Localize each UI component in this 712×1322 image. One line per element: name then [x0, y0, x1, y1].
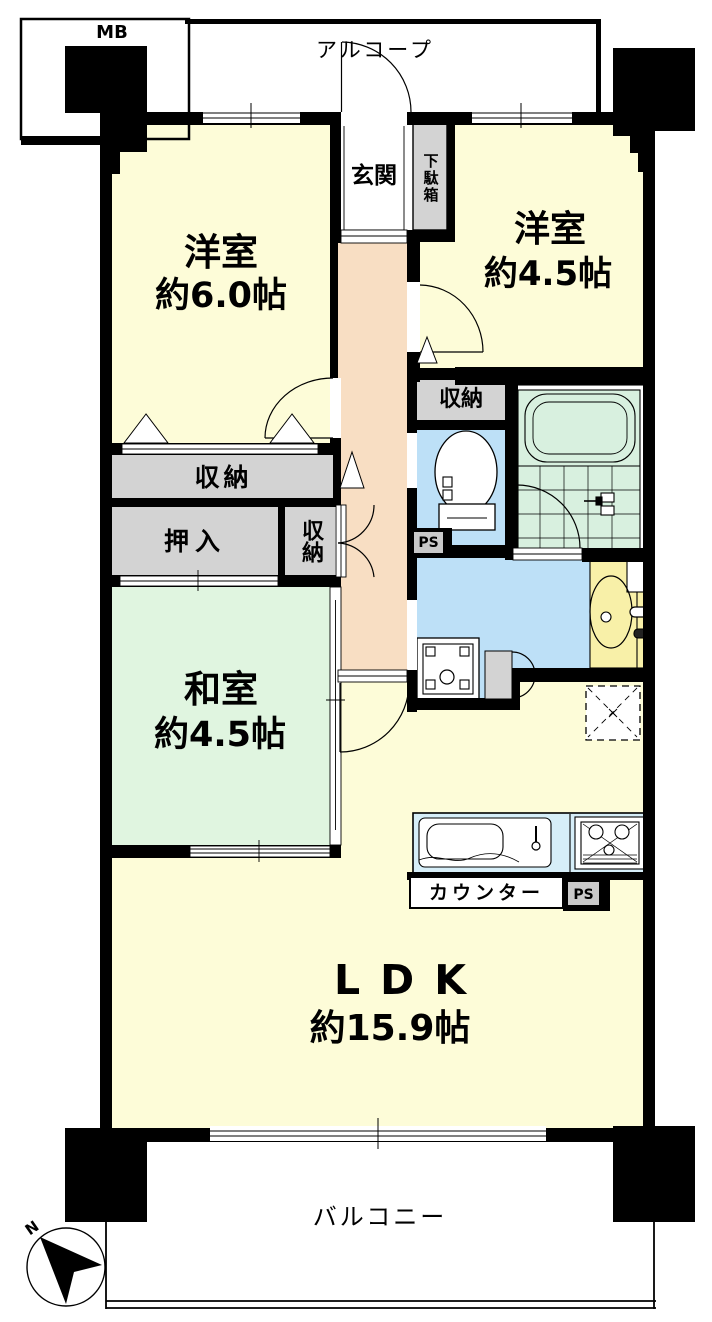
ldk-name: LDK — [250, 956, 550, 1004]
pillar-bottom-right — [613, 1126, 695, 1222]
floor-plan-drawing — [0, 0, 712, 1322]
japanese-room-size: 約4.5帖 — [105, 712, 335, 758]
ps-toilet-label: PS — [414, 532, 443, 553]
ldk-threshold — [338, 670, 407, 682]
storage-bedroom-label: 収納 — [112, 462, 335, 492]
floor-plan: MB アルコープ 玄関 下駄箱 洋室 約6.0帖 洋室 約4.5帖 収納 収納 … — [0, 0, 712, 1322]
ceiling-hatch — [586, 686, 640, 740]
doorway-toilet — [407, 433, 417, 488]
kitchen-counter — [413, 813, 650, 873]
toilet-icon — [435, 431, 497, 530]
ldk-size: 約15.9帖 — [240, 1006, 540, 1052]
western-room-2-name: 洋室 — [455, 208, 645, 252]
doorway-west-room-1 — [330, 378, 341, 438]
doorway-west-room-2 — [407, 282, 420, 352]
ps-kitchen-label: PS — [568, 883, 599, 906]
closet-label: 押入 — [112, 526, 278, 556]
balcony-label: バルコニー — [280, 1200, 480, 1234]
compass-icon — [27, 1228, 105, 1306]
alcove-label: アルコープ — [300, 36, 450, 64]
closet-front-track — [122, 444, 318, 454]
counter-label: カウンター — [410, 878, 563, 908]
entrance-step — [341, 230, 407, 243]
storage-small-label: 収納 — [288, 509, 332, 573]
japanese-room-name: 和室 — [112, 666, 330, 712]
entrance-label: 玄関 — [341, 160, 407, 192]
bath-threshold — [513, 548, 582, 560]
doorway-entrance — [341, 109, 407, 126]
pillar-meter-box — [65, 46, 147, 113]
meter-box-label: MB — [62, 22, 162, 44]
storage-small-door-track — [336, 505, 346, 577]
western-room-1-size: 約6.0帖 — [112, 274, 330, 318]
kitchen-sink-icon — [419, 818, 551, 867]
stove-icon — [575, 817, 645, 869]
storage-hall-label: 収納 — [417, 385, 505, 415]
doorway-washroom — [407, 600, 417, 670]
pillar-bottom-left — [65, 1128, 147, 1222]
shoe-cabinet-label: 下駄箱 — [414, 132, 446, 224]
western-room-1-name: 洋室 — [112, 230, 330, 274]
bathroom-unit — [513, 385, 645, 555]
hallway-floor — [338, 240, 407, 672]
western-room-2-size: 約4.5帖 — [448, 252, 648, 296]
washing-machine-icon — [417, 638, 479, 700]
